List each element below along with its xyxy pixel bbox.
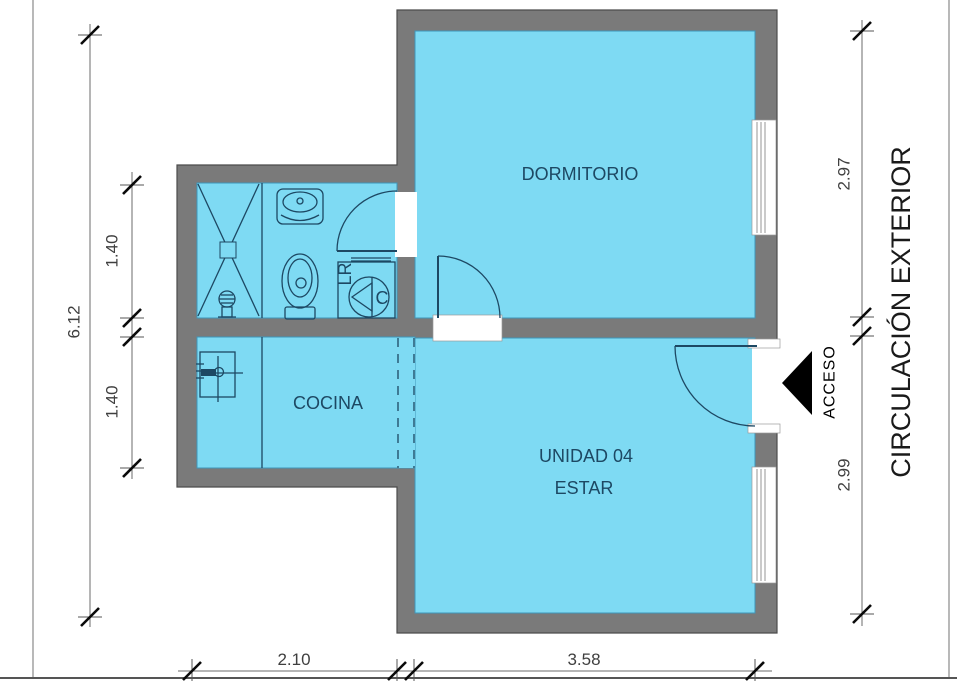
- wall-left-outer: [177, 165, 197, 487]
- dimension-value: 1.40: [103, 234, 122, 267]
- floor-plan-canvas: LR C DORMITORIO COCINA UNIDAD 04 ESTAR: [0, 0, 957, 681]
- door-threshold: [433, 315, 502, 341]
- door-opening: [395, 192, 417, 257]
- access-arrow-icon: [782, 351, 812, 415]
- wall-bottom: [397, 613, 777, 633]
- dimension-value: 3.58: [567, 650, 600, 669]
- wall-bathroom-top: [177, 165, 415, 183]
- window-frame: [752, 120, 776, 235]
- window-frame: [752, 467, 776, 583]
- floor-living: [415, 338, 755, 613]
- exterior-circulation-label: CIRCULACIÓN EXTERIOR: [885, 146, 916, 478]
- room-label-bedroom: DORMITORIO: [522, 164, 639, 184]
- window-living: [752, 467, 776, 583]
- wall-left-column-lower: [397, 468, 415, 633]
- door-opening: [752, 341, 779, 431]
- floor-kitchen-living-connector: [397, 338, 415, 468]
- wall-kitchen-bottom: [177, 468, 415, 487]
- dimension-value: 2.99: [835, 458, 854, 491]
- unit-label: UNIDAD 04: [539, 446, 633, 466]
- faucet-arm: [201, 369, 216, 376]
- dimension-value: 6.12: [65, 305, 84, 338]
- room-label-kitchen: COCINA: [293, 393, 363, 413]
- dimension-right: 2.97 2.99: [835, 20, 875, 626]
- window-bedroom: [752, 120, 776, 235]
- dimension-value: 2.10: [277, 650, 310, 669]
- floor-plan-page: LR C DORMITORIO COCINA UNIDAD 04 ESTAR: [0, 0, 957, 681]
- shower-drain-box: [220, 242, 236, 258]
- room-label-living: ESTAR: [555, 478, 614, 498]
- dimension-left-total: 6.12: [65, 24, 103, 627]
- heater-label: C: [376, 288, 389, 308]
- access-label: ACCESO: [822, 345, 839, 419]
- dimension-left-inner: 1.40 1.40: [103, 172, 145, 479]
- dimension-value: 1.40: [103, 385, 122, 418]
- dimension-bottom: 2.10 3.58: [178, 650, 772, 681]
- wall-top: [397, 10, 777, 31]
- dimension-value: 2.97: [835, 157, 854, 190]
